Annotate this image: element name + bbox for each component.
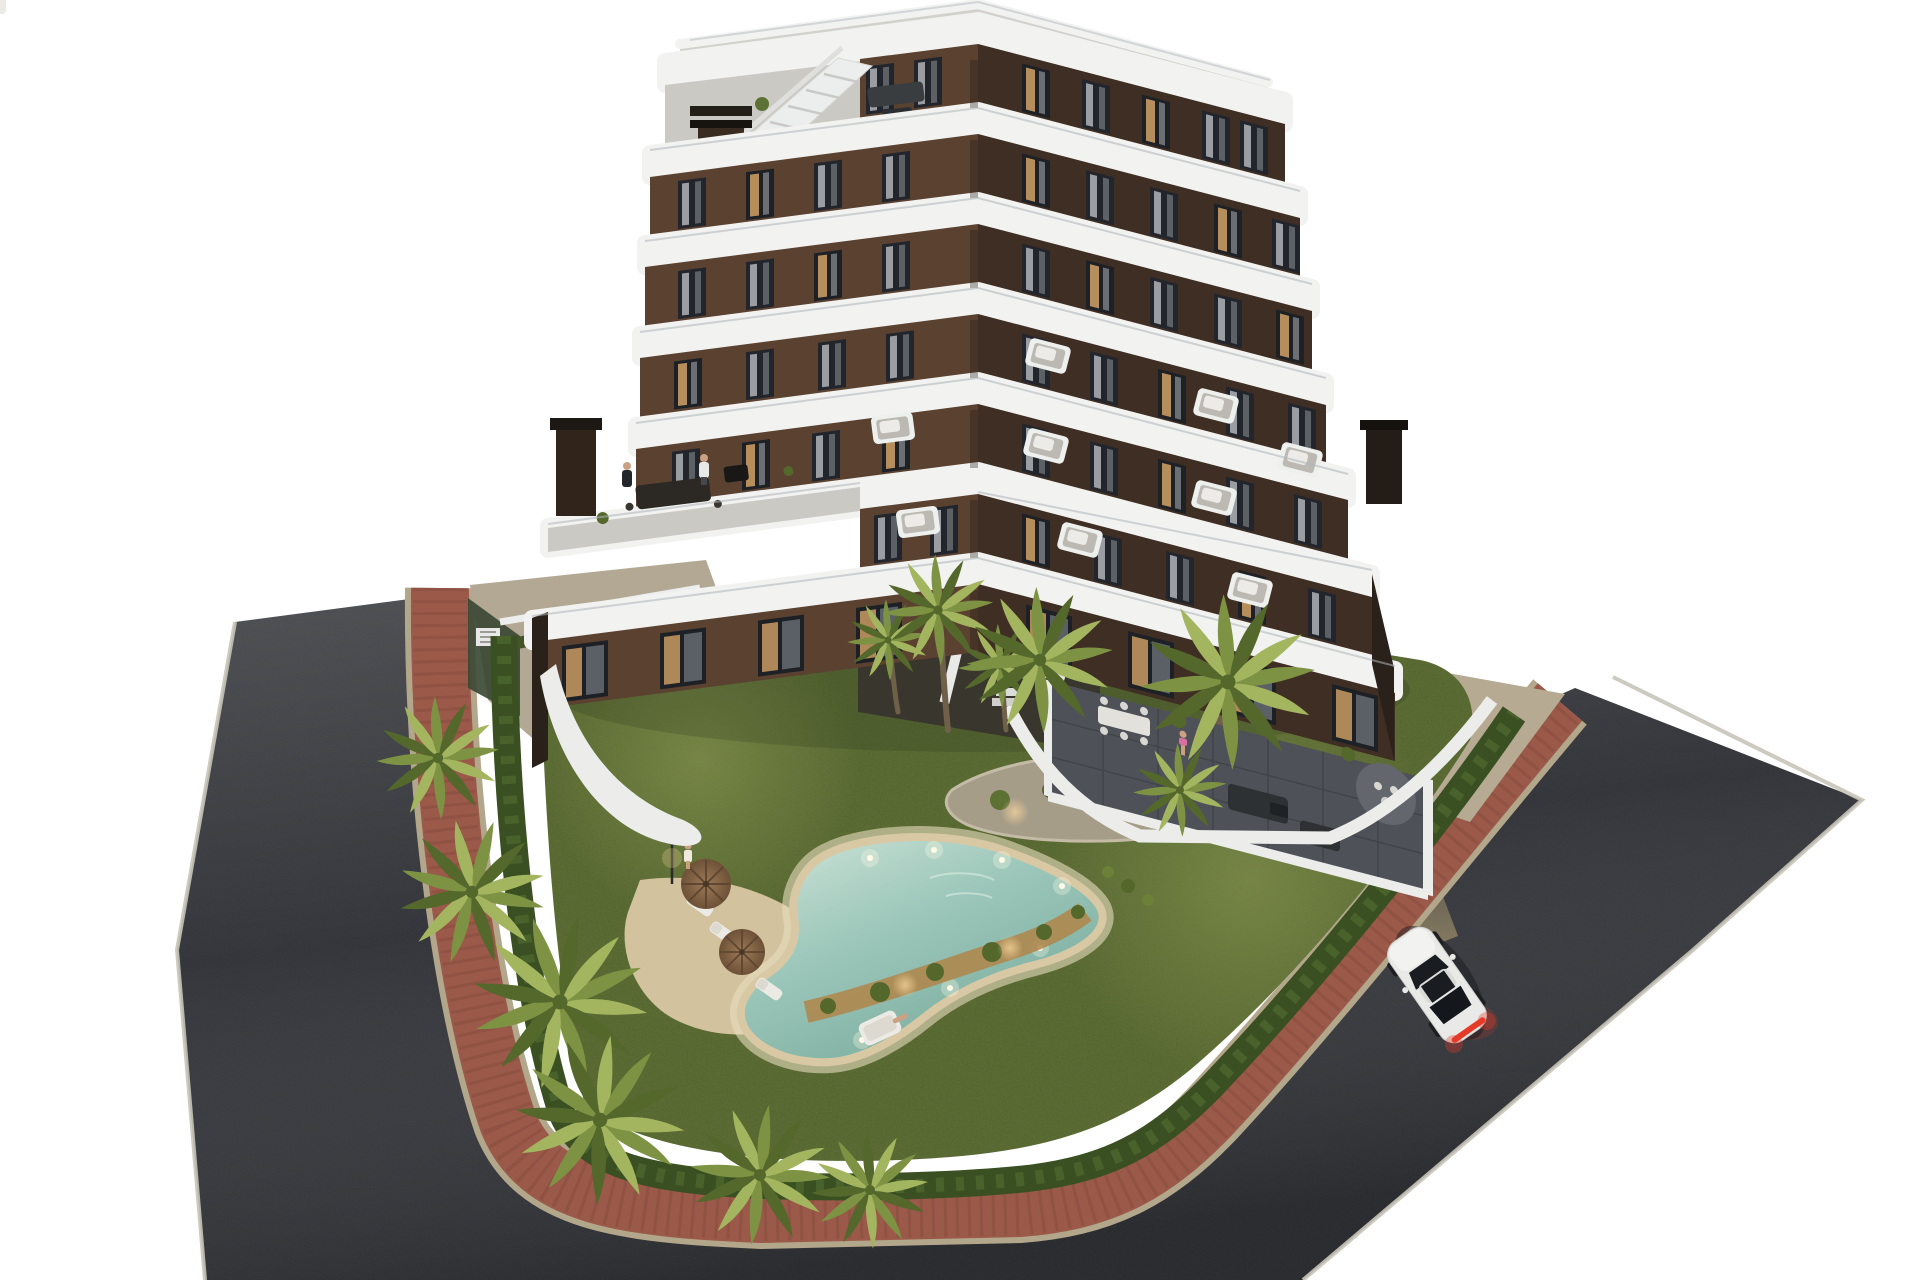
- person-terrace-woman: [622, 462, 632, 487]
- parasol: [719, 929, 765, 975]
- chimney: [1360, 420, 1408, 504]
- chimney: [550, 418, 602, 516]
- render-canvas: [0, 0, 1920, 1280]
